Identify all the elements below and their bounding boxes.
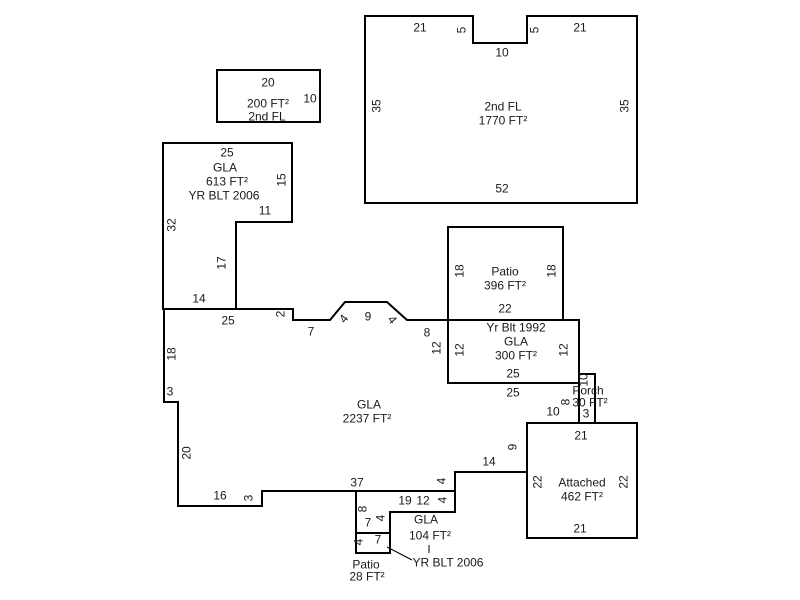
shape-title: 2nd FL bbox=[484, 101, 521, 114]
shape-area: 2237 FT² bbox=[343, 413, 392, 426]
shape-area: 300 FT² bbox=[495, 350, 537, 363]
dim-label: 18 bbox=[166, 347, 179, 360]
dim-label: 7 bbox=[308, 326, 315, 339]
dim-label: 5 bbox=[456, 27, 469, 34]
dim-label: 11 bbox=[259, 205, 271, 218]
dim-label: 25 bbox=[506, 387, 519, 400]
shape-title: GLA bbox=[213, 162, 237, 175]
dim-label: 7 bbox=[375, 534, 382, 547]
dim-label: 14 bbox=[192, 293, 205, 306]
shape-title: GLA bbox=[357, 399, 381, 412]
dim-label: 21 bbox=[413, 22, 426, 35]
dim-label: 17 bbox=[216, 256, 229, 269]
dim-label: 9 bbox=[507, 444, 520, 451]
dim-label: 20 bbox=[181, 446, 194, 459]
shape-area: 104 FT² bbox=[409, 530, 451, 543]
dim-label: 5 bbox=[529, 27, 542, 34]
dim-label: 32 bbox=[166, 218, 179, 231]
dim-label: 4 bbox=[437, 497, 450, 504]
shape-area: 28 FT² bbox=[349, 571, 384, 584]
shape-year: Yr Blt 1992 bbox=[486, 322, 545, 335]
dim-label: 22 bbox=[498, 303, 511, 316]
dim-label: 22 bbox=[532, 475, 545, 488]
dim-label: 8 bbox=[560, 399, 573, 406]
dim-label: 52 bbox=[495, 183, 508, 196]
dim-label: 4 bbox=[436, 478, 449, 485]
dim-label: 10 bbox=[303, 93, 316, 106]
dim-label: 37 bbox=[350, 477, 363, 490]
dim-label: 15 bbox=[276, 173, 289, 186]
dim-label: 3 bbox=[167, 386, 174, 399]
dim-label: 35 bbox=[371, 99, 384, 112]
shape-area: 613 FT² bbox=[206, 176, 248, 189]
dim-label: 10 bbox=[546, 406, 559, 419]
dim-label: 12 bbox=[416, 495, 429, 508]
shape-area: 396 FT² bbox=[484, 280, 526, 293]
dim-label: 35 bbox=[619, 99, 632, 112]
dim-label: 3 bbox=[243, 495, 256, 502]
shape-title: Attached bbox=[558, 477, 605, 490]
floor-plan-sketch: 21 5 10 5 21 35 35 2nd FL 1770 FT² 52 20… bbox=[0, 0, 800, 600]
dim-label: 10 bbox=[495, 47, 508, 60]
dim-label: 12 bbox=[454, 343, 467, 356]
shape-area: 462 FT² bbox=[561, 491, 603, 504]
dim-label: 21 bbox=[574, 430, 587, 443]
shape-area: 30 FT² bbox=[572, 397, 607, 410]
dim-label: 25 bbox=[220, 147, 233, 160]
dim-label: 8 bbox=[357, 506, 370, 513]
dim-label: 18 bbox=[454, 264, 467, 277]
dim-label: 19 bbox=[398, 495, 411, 508]
shape-title: 2nd FL bbox=[248, 111, 285, 124]
dim-label: 14 bbox=[482, 456, 495, 469]
dim-label: 9 bbox=[365, 311, 372, 324]
dim-label: 25 bbox=[506, 368, 519, 381]
shape-area: 1770 FT² bbox=[479, 115, 528, 128]
shape-year: YR BLT 2006 bbox=[413, 557, 484, 570]
dim-label: 12 bbox=[431, 341, 444, 354]
dim-label: 18 bbox=[546, 264, 559, 277]
dim-label: 22 bbox=[618, 475, 631, 488]
shape-title: GLA bbox=[414, 514, 438, 527]
sketch-canvas bbox=[0, 0, 800, 600]
dim-label: 2 bbox=[275, 311, 288, 318]
shape-year: YR BLT 2006 bbox=[189, 190, 260, 203]
dim-label: 16 bbox=[213, 490, 226, 503]
dim-label: 21 bbox=[573, 523, 586, 536]
dim-label: 20 bbox=[261, 77, 274, 90]
dim-label: 12 bbox=[558, 343, 571, 356]
dim-label: 25 bbox=[221, 315, 234, 328]
shape-title: Patio bbox=[491, 266, 518, 279]
dim-label: 7 bbox=[365, 517, 372, 530]
dim-label: 21 bbox=[573, 22, 586, 35]
shape-title: GLA bbox=[504, 336, 528, 349]
dim-label: 3 bbox=[583, 408, 590, 421]
dim-label: 8 bbox=[424, 327, 431, 340]
dim-label: 4 bbox=[375, 515, 388, 522]
dim-label: 4 bbox=[353, 539, 366, 546]
